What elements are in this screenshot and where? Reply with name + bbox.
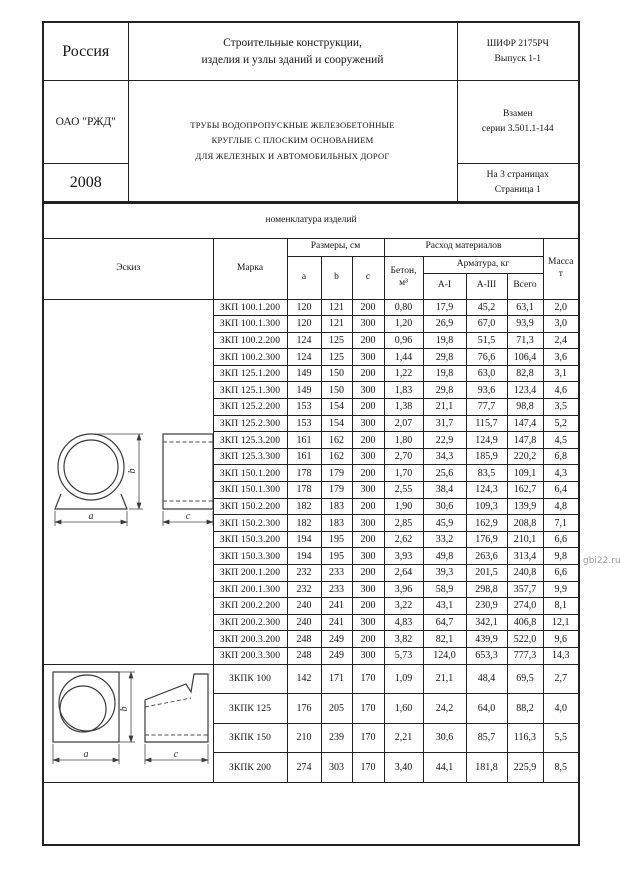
value-cell: 123,4	[507, 382, 543, 399]
value-cell: 125	[321, 332, 352, 349]
cipher-cell: ШИФР 2175РЧ Выпуск 1-1	[457, 22, 579, 81]
mark-cell: ЗКП 150.3.300	[213, 548, 287, 565]
mark-cell: ЗКП 200.2.200	[213, 598, 287, 615]
value-cell: 161	[287, 432, 321, 449]
mark-cell: ЗКП 125.2.200	[213, 399, 287, 416]
concrete-label-line1: Бетон,	[386, 266, 422, 278]
value-cell: 232	[287, 581, 321, 598]
zkpk-cone-sketch: b a c	[45, 667, 213, 779]
value-cell: 4,8	[543, 498, 579, 515]
replaces-line2: серии 3.501.1-144	[459, 122, 578, 137]
value-cell: 220,2	[507, 448, 543, 465]
value-cell: 6,6	[543, 531, 579, 548]
value-cell: 313,4	[507, 548, 543, 565]
value-cell: 248	[287, 631, 321, 648]
replaces-cell: Взамен серии 3.501.1-144	[457, 81, 579, 164]
col-header-c: c	[352, 256, 384, 299]
value-cell: 0,80	[384, 299, 423, 316]
value-cell: 124,3	[466, 482, 507, 499]
dim-a-label: a	[89, 511, 94, 522]
dim-b-label: b	[127, 468, 138, 473]
value-cell: 170	[352, 753, 384, 783]
value-cell: 2,85	[384, 515, 423, 532]
value-cell: 3,0	[543, 316, 579, 333]
table-row: b a c ЗКПК 1001421711701,0921,148,469,52…	[43, 664, 579, 694]
value-cell: 124,9	[466, 432, 507, 449]
value-cell: 31,7	[423, 415, 466, 432]
mark-cell: ЗКП 150.2.300	[213, 515, 287, 532]
value-cell: 109,1	[507, 465, 543, 482]
value-cell: 2,55	[384, 482, 423, 499]
value-cell: 29,8	[423, 349, 466, 366]
pages-cell: На 3 страницах Страница 1	[457, 164, 579, 203]
value-cell: 8,1	[543, 598, 579, 615]
watermark: gbi22.ru	[583, 556, 620, 566]
mark-cell: ЗКП 100.2.300	[213, 349, 287, 366]
value-cell: 69,5	[507, 664, 543, 694]
value-cell: 19,8	[423, 365, 466, 382]
mark-cell: ЗКП 150.2.200	[213, 498, 287, 515]
value-cell: 21,1	[423, 664, 466, 694]
value-cell: 1,80	[384, 432, 423, 449]
value-cell: 149	[287, 365, 321, 382]
value-cell: 777,3	[507, 647, 543, 664]
value-cell: 64,0	[466, 694, 507, 724]
value-cell: 2,0	[543, 299, 579, 316]
mark-cell: ЗКП 200.1.300	[213, 581, 287, 598]
country-cell: Россия	[43, 22, 128, 81]
value-cell: 439,9	[466, 631, 507, 648]
value-cell: 194	[287, 548, 321, 565]
value-cell: 4,0	[543, 694, 579, 724]
value-cell: 124	[287, 332, 321, 349]
value-cell: 63,1	[507, 299, 543, 316]
subject-line2: КРУГЛЫЕ С ПЛОСКИМ ОСНОВАНИЕМ	[130, 133, 456, 148]
value-cell: 200	[352, 498, 384, 515]
value-cell: 176,9	[466, 531, 507, 548]
value-cell: 109,3	[466, 498, 507, 515]
value-cell: 5,2	[543, 415, 579, 432]
value-cell: 249	[321, 631, 352, 648]
value-cell: 2,62	[384, 531, 423, 548]
value-cell: 82,8	[507, 365, 543, 382]
value-cell: 342,1	[466, 614, 507, 631]
value-cell: 14,3	[543, 647, 579, 664]
value-cell: 241	[321, 614, 352, 631]
value-cell: 200	[352, 631, 384, 648]
value-cell: 76,6	[466, 349, 507, 366]
dim-a-label: a	[84, 749, 89, 760]
value-cell: 357,7	[507, 581, 543, 598]
col-header-materials: Расход материалов	[384, 238, 543, 256]
value-cell: 8,5	[543, 753, 579, 783]
mark-cell: ЗКП 100.1.300	[213, 316, 287, 333]
title-block-row: ОАО "РЖД" ТРУБЫ ВОДОПРОПУСКНЫЕ ЖЕЛЕЗОБЕТ…	[43, 81, 579, 164]
value-cell: 64,7	[423, 614, 466, 631]
zkpk-rows-group: b a c ЗКПК 1001421711701,0921,148,469,52…	[43, 664, 579, 782]
value-cell: 3,6	[543, 349, 579, 366]
value-cell: 1,22	[384, 365, 423, 382]
value-cell: 6,8	[543, 448, 579, 465]
value-cell: 162,7	[507, 482, 543, 499]
value-cell: 162	[321, 432, 352, 449]
value-cell: 185,9	[466, 448, 507, 465]
value-cell: 300	[352, 548, 384, 565]
value-cell: 43,1	[423, 598, 466, 615]
value-cell: 3,1	[543, 365, 579, 382]
value-cell: 178	[287, 465, 321, 482]
value-cell: 200	[352, 598, 384, 615]
col-header-ai: А-I	[423, 273, 466, 299]
subject-cell: ТРУБЫ ВОДОПРОПУСКНЫЕ ЖЕЛЕЗОБЕТОННЫЕ КРУГ…	[128, 81, 457, 203]
value-cell: 93,9	[507, 316, 543, 333]
value-cell: 21,1	[423, 399, 466, 416]
value-cell: 239	[321, 723, 352, 753]
value-cell: 45,9	[423, 515, 466, 532]
value-cell: 9,9	[543, 581, 579, 598]
value-cell: 182	[287, 515, 321, 532]
col-header-total: Всего	[507, 273, 543, 299]
value-cell: 1,20	[384, 316, 423, 333]
value-cell: 179	[321, 465, 352, 482]
value-cell: 124	[287, 349, 321, 366]
mark-cell: ЗКПК 200	[213, 753, 287, 783]
empty-footer-row	[43, 782, 579, 845]
value-cell: 161	[287, 448, 321, 465]
table-row: a b c ЗКП 100.1.2001201212000,8017,945,2…	[43, 299, 579, 316]
value-cell: 3,22	[384, 598, 423, 615]
value-cell: 4,83	[384, 614, 423, 631]
value-cell: 0,96	[384, 332, 423, 349]
value-cell: 195	[321, 531, 352, 548]
title-block: Россия Строительные конструкции, изделия…	[42, 21, 580, 203]
dim-b-label: b	[119, 707, 130, 712]
mark-cell: ЗКП 150.1.300	[213, 482, 287, 499]
value-cell: 121	[321, 299, 352, 316]
value-cell: 195	[321, 548, 352, 565]
value-cell: 6,6	[543, 565, 579, 582]
value-cell: 300	[352, 647, 384, 664]
value-cell: 153	[287, 415, 321, 432]
value-cell: 22,9	[423, 432, 466, 449]
value-cell: 201,5	[466, 565, 507, 582]
value-cell: 225,9	[507, 753, 543, 783]
value-cell: 5,73	[384, 647, 423, 664]
value-cell: 17,9	[423, 299, 466, 316]
value-cell: 1,90	[384, 498, 423, 515]
value-cell: 4,3	[543, 465, 579, 482]
value-cell: 30,6	[423, 723, 466, 753]
value-cell: 153	[287, 399, 321, 416]
value-cell: 3,93	[384, 548, 423, 565]
value-cell: 248	[287, 647, 321, 664]
value-cell: 7,1	[543, 515, 579, 532]
mark-cell: ЗКП 150.3.200	[213, 531, 287, 548]
value-cell: 139,9	[507, 498, 543, 515]
footer-group	[43, 782, 579, 845]
value-cell: 115,7	[466, 415, 507, 432]
value-cell: 200	[352, 531, 384, 548]
value-cell: 58,9	[423, 581, 466, 598]
value-cell: 116,3	[507, 723, 543, 753]
value-cell: 2,21	[384, 723, 423, 753]
value-cell: 170	[352, 723, 384, 753]
col-header-a: a	[287, 256, 321, 299]
value-cell: 147,8	[507, 432, 543, 449]
sketch-cell: b a c	[43, 664, 213, 782]
mark-cell: ЗКП 125.3.200	[213, 432, 287, 449]
value-cell: 249	[321, 647, 352, 664]
value-cell: 171	[321, 664, 352, 694]
mark-cell: ЗКП 200.2.300	[213, 614, 287, 631]
value-cell: 1,44	[384, 349, 423, 366]
value-cell: 200	[352, 332, 384, 349]
value-cell: 5,5	[543, 723, 579, 753]
value-cell: 522,0	[507, 631, 543, 648]
table-header-row: Эскиз Марка Размеры, см Расход материало…	[43, 238, 579, 256]
value-cell: 150	[321, 382, 352, 399]
mark-cell: ЗКПК 150	[213, 723, 287, 753]
value-cell: 33,2	[423, 531, 466, 548]
value-cell: 154	[321, 415, 352, 432]
value-cell: 85,7	[466, 723, 507, 753]
value-cell: 26,9	[423, 316, 466, 333]
pages-line2: Страница 1	[459, 183, 578, 198]
mark-cell: ЗКП 125.3.300	[213, 448, 287, 465]
value-cell: 124,0	[423, 647, 466, 664]
value-cell: 1,09	[384, 664, 423, 694]
value-cell: 653,3	[466, 647, 507, 664]
value-cell: 240	[287, 598, 321, 615]
mass-label-line2: т	[545, 269, 578, 281]
mark-cell: ЗКП 200.1.200	[213, 565, 287, 582]
mark-cell: ЗКП 100.1.200	[213, 299, 287, 316]
dim-c-label: c	[186, 511, 191, 522]
value-cell: 88,2	[507, 694, 543, 724]
value-cell: 125	[321, 349, 352, 366]
value-cell: 9,8	[543, 548, 579, 565]
col-header-mass: Масса т	[543, 238, 579, 299]
value-cell: 63,0	[466, 365, 507, 382]
col-header-rebar: Арматура, кг	[423, 256, 543, 273]
value-cell: 34,3	[423, 448, 466, 465]
value-cell: 3,96	[384, 581, 423, 598]
value-cell: 205	[321, 694, 352, 724]
value-cell: 170	[352, 694, 384, 724]
value-cell: 170	[352, 664, 384, 694]
mark-cell: ЗКП 150.1.200	[213, 465, 287, 482]
value-cell: 1,60	[384, 694, 423, 724]
value-cell: 2,07	[384, 415, 423, 432]
value-cell: 29,8	[423, 382, 466, 399]
value-cell: 38,4	[423, 482, 466, 499]
value-cell: 406,8	[507, 614, 543, 631]
zkp-pipe-sketch: a b c	[45, 423, 213, 541]
value-cell: 3,5	[543, 399, 579, 416]
value-cell: 179	[321, 482, 352, 499]
value-cell: 4,6	[543, 382, 579, 399]
value-cell: 98,8	[507, 399, 543, 416]
value-cell: 67,0	[466, 316, 507, 333]
value-cell: 30,6	[423, 498, 466, 515]
col-header-b: b	[321, 256, 352, 299]
value-cell: 240,8	[507, 565, 543, 582]
value-cell: 274,0	[507, 598, 543, 615]
value-cell: 200	[352, 565, 384, 582]
value-cell: 48,4	[466, 664, 507, 694]
value-cell: 183	[321, 515, 352, 532]
issue-line: Выпуск 1-1	[459, 52, 578, 67]
value-cell: 106,4	[507, 349, 543, 366]
mark-cell: ЗКПК 125	[213, 694, 287, 724]
value-cell: 263,6	[466, 548, 507, 565]
value-cell: 1,38	[384, 399, 423, 416]
value-cell: 232	[287, 565, 321, 582]
value-cell: 200	[352, 399, 384, 416]
col-header-sizes: Размеры, см	[287, 238, 384, 256]
value-cell: 45,2	[466, 299, 507, 316]
value-cell: 178	[287, 482, 321, 499]
value-cell: 150	[321, 365, 352, 382]
mark-cell: ЗКП 200.3.200	[213, 631, 287, 648]
value-cell: 2,70	[384, 448, 423, 465]
nomenclature-table: номенклатура изделий Эскиз Марка Размеры…	[42, 202, 580, 846]
value-cell: 83,5	[466, 465, 507, 482]
value-cell: 303	[321, 753, 352, 783]
value-cell: 24,2	[423, 694, 466, 724]
value-cell: 2,7	[543, 664, 579, 694]
subject-line1: ТРУБЫ ВОДОПРОПУСКНЫЕ ЖЕЛЕЗОБЕТОННЫЕ	[130, 118, 456, 133]
value-cell: 149	[287, 382, 321, 399]
value-cell: 9,6	[543, 631, 579, 648]
value-cell: 210,1	[507, 531, 543, 548]
value-cell: 200	[352, 465, 384, 482]
cipher-line: ШИФР 2175РЧ	[459, 37, 578, 52]
document-page: Россия Строительные конструкции, изделия…	[42, 21, 578, 846]
value-cell: 240	[287, 614, 321, 631]
value-cell: 300	[352, 316, 384, 333]
value-cell: 298,8	[466, 581, 507, 598]
value-cell: 3,82	[384, 631, 423, 648]
value-cell: 2,4	[543, 332, 579, 349]
value-cell: 121	[321, 316, 352, 333]
col-header-sketch: Эскиз	[43, 238, 213, 299]
value-cell: 120	[287, 316, 321, 333]
section-title: номенклатура изделий	[43, 203, 579, 239]
value-cell: 300	[352, 448, 384, 465]
value-cell: 1,83	[384, 382, 423, 399]
value-cell: 200	[352, 299, 384, 316]
series-title-cell: Строительные конструкции, изделия и узлы…	[128, 22, 457, 81]
col-header-mark: Марка	[213, 238, 287, 299]
value-cell: 3,40	[384, 753, 423, 783]
value-cell: 162	[321, 448, 352, 465]
mark-cell: ЗКП 100.2.200	[213, 332, 287, 349]
value-cell: 183	[321, 498, 352, 515]
zkp-rows-group: a b c ЗКП 100.1.2001201212000,8017,945,2…	[43, 299, 579, 664]
value-cell: 300	[352, 349, 384, 366]
replaces-line1: Взамен	[459, 107, 578, 122]
value-cell: 300	[352, 482, 384, 499]
subject-line3: ДЛЯ ЖЕЛЕЗНЫХ И АВТОМОБИЛЬНЫХ ДОРОГ	[130, 149, 456, 164]
value-cell: 120	[287, 299, 321, 316]
col-header-aiii: А-III	[466, 273, 507, 299]
value-cell: 154	[321, 399, 352, 416]
value-cell: 194	[287, 531, 321, 548]
value-cell: 200	[352, 365, 384, 382]
value-cell: 12,1	[543, 614, 579, 631]
mass-label-line1: Масса	[545, 257, 578, 269]
value-cell: 25,6	[423, 465, 466, 482]
value-cell: 6,4	[543, 482, 579, 499]
series-title-line2: изделия и узлы зданий и сооружений	[130, 52, 456, 69]
value-cell: 230,9	[466, 598, 507, 615]
value-cell: 181,8	[466, 753, 507, 783]
value-cell: 51,5	[466, 332, 507, 349]
value-cell: 2,64	[384, 565, 423, 582]
value-cell: 19,8	[423, 332, 466, 349]
value-cell: 142	[287, 664, 321, 694]
value-cell: 274	[287, 753, 321, 783]
value-cell: 39,3	[423, 565, 466, 582]
value-cell: 208,8	[507, 515, 543, 532]
value-cell: 300	[352, 515, 384, 532]
value-cell: 49,8	[423, 548, 466, 565]
series-title-line1: Строительные конструкции,	[130, 35, 456, 52]
sketch-cell: a b c	[43, 299, 213, 664]
value-cell: 162,9	[466, 515, 507, 532]
mark-cell: ЗКП 125.1.300	[213, 382, 287, 399]
dim-c-label: c	[174, 749, 179, 760]
value-cell: 241	[321, 598, 352, 615]
value-cell: 300	[352, 382, 384, 399]
title-block-row: Россия Строительные конструкции, изделия…	[43, 22, 579, 81]
value-cell: 82,1	[423, 631, 466, 648]
year-cell: 2008	[43, 164, 128, 203]
pages-line1: На 3 страницах	[459, 168, 578, 183]
mark-cell: ЗКП 125.2.300	[213, 415, 287, 432]
value-cell: 182	[287, 498, 321, 515]
value-cell: 300	[352, 415, 384, 432]
value-cell: 71,3	[507, 332, 543, 349]
value-cell: 200	[352, 432, 384, 449]
col-header-concrete: Бетон, м³	[384, 256, 423, 299]
value-cell: 300	[352, 581, 384, 598]
organization-cell: ОАО "РЖД"	[43, 81, 128, 164]
value-cell: 233	[321, 581, 352, 598]
value-cell: 93,6	[466, 382, 507, 399]
mark-cell: ЗКП 200.3.300	[213, 647, 287, 664]
value-cell: 4,5	[543, 432, 579, 449]
value-cell: 210	[287, 723, 321, 753]
mark-cell: ЗКП 125.1.200	[213, 365, 287, 382]
value-cell: 77,7	[466, 399, 507, 416]
value-cell: 233	[321, 565, 352, 582]
value-cell: 44,1	[423, 753, 466, 783]
value-cell: 147,4	[507, 415, 543, 432]
value-cell: 300	[352, 614, 384, 631]
concrete-label-line2: м³	[386, 278, 422, 290]
empty-footer-cell	[43, 782, 579, 845]
mark-cell: ЗКПК 100	[213, 664, 287, 694]
value-cell: 1,70	[384, 465, 423, 482]
value-cell: 176	[287, 694, 321, 724]
section-title-row: номенклатура изделий	[43, 203, 579, 239]
